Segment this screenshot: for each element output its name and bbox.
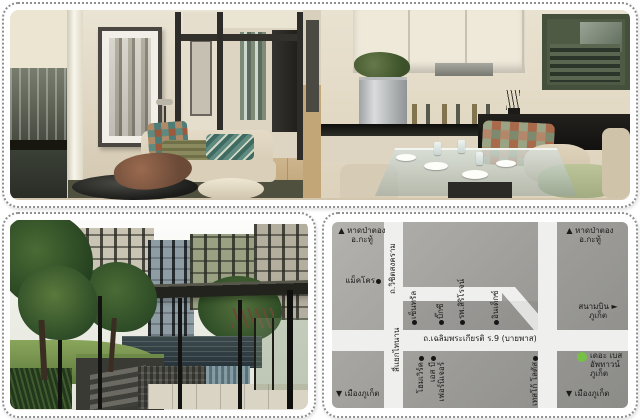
bedroom-ceiling — [223, 12, 297, 28]
counter-edge — [10, 140, 67, 150]
pavilion-column — [178, 298, 182, 409]
poi-label-sb-furniture: เอส บี เฟอร์นิเจอร์ — [428, 362, 446, 406]
location-map-card: ▲ หาดป่าตอง อ.กะทู้ ▲ หาดป่าตอง อ.กะทู้ … — [322, 212, 638, 418]
poi-label-bigc: บิ๊กซี — [436, 304, 446, 319]
poi-label-line: เอส บี — [428, 362, 437, 406]
direction-line: สนามบิน ► — [570, 302, 626, 311]
project-label-the-base-uptown: เดอะ เบส อัพทาวน์ ภูเก็ต — [590, 351, 622, 378]
exterior-photo-card — [2, 212, 316, 418]
reed-diffuser — [506, 90, 520, 110]
direction-airport: สนามบิน ► ภูเก็ต — [570, 302, 626, 320]
direction-line: ▲ หาดป่าตอง — [334, 226, 390, 235]
pavilion-column — [238, 300, 242, 409]
dish — [496, 160, 516, 167]
poi-marker-bigc — [439, 320, 444, 325]
real-estate-collage: ▲ หาดป่าตอง อ.กะทู้ ▲ หาดป่าตอง อ.กะทู้ … — [0, 0, 640, 420]
dish — [462, 170, 488, 179]
mirror-panel — [10, 68, 67, 142]
road-label-bypass: ถ.เฉลิมพระเกียรติ ร.9 (บายพาส) — [390, 334, 570, 343]
dish — [424, 162, 448, 170]
direction-patong-left: ▲ หาดป่าตอง อ.กะทู้ — [334, 226, 390, 244]
project-marker-the-base-uptown — [577, 352, 587, 362]
zigzag-pillow — [206, 134, 254, 160]
floor-lamp-head — [156, 99, 173, 105]
pavilion-column — [287, 290, 293, 409]
poi-label-index: อินเด็กซ์ — [491, 291, 501, 319]
drinking-glass — [434, 142, 441, 155]
exterior-photo — [10, 220, 308, 410]
poi-label-siriroj-hospital: รพ.สิริโรจน์ — [457, 279, 467, 319]
poi-label-line: เฟอร์นิเจอร์ — [437, 362, 446, 406]
direction-line: อ.กะทู้ — [562, 235, 618, 244]
poi-marker-sb-furniture — [431, 356, 436, 361]
dish — [396, 154, 416, 161]
project-name-line: อัพทาวน์ — [590, 360, 622, 369]
interior-photo — [10, 10, 630, 200]
drinking-glass — [476, 152, 483, 165]
curtain-strip — [67, 10, 83, 198]
poi-label-tesco-lotus: เทสโก้ โลตัส — [530, 362, 539, 406]
hallway-mirror — [306, 20, 319, 112]
city-block — [403, 301, 538, 330]
poi-marker-siriroj-hospital — [460, 320, 465, 325]
ottoman — [198, 178, 264, 200]
slatted-wall-decor — [542, 14, 630, 90]
slatted-divider — [240, 32, 266, 120]
direction-phuket-town-right: ▼ เมืองภูเก็ต — [566, 389, 609, 398]
poi-marker-homework — [419, 356, 424, 361]
dining-table-base — [448, 182, 512, 198]
road-label-wichit-songkram: ถ.วิชิตสงคราม — [388, 243, 398, 294]
glass-railing — [254, 318, 308, 390]
direction-phuket-town-left: ▼ เมืองภูเก็ต — [336, 389, 379, 398]
project-name-line: เดอะ เบส — [590, 351, 622, 360]
poi-marker-makro — [376, 279, 381, 284]
direction-line: ▲ หาดป่าตอง — [562, 226, 618, 235]
drinking-glass — [458, 140, 465, 153]
pavilion-column — [98, 296, 102, 409]
cabinet-base — [10, 150, 67, 198]
location-map: ▲ หาดป่าตอง อ.กะทู้ ▲ หาดป่าตอง อ.กะทู้ … — [332, 222, 628, 408]
partition-beam — [175, 34, 308, 41]
direction-patong-right: ▲ หาดป่าตอง อ.กะทู้ — [562, 226, 618, 244]
poi-marker-index — [494, 320, 499, 325]
poi-marker-tesco-lotus — [533, 356, 538, 361]
range-hood — [435, 63, 493, 76]
poi-label-homework: โฮมเวิร์ค — [416, 362, 425, 406]
plant — [354, 52, 410, 79]
direction-line: ภูเก็ต — [570, 311, 626, 320]
kitchen-cabinet — [10, 10, 67, 71]
direction-line: อ.กะทู้ — [334, 235, 390, 244]
poi-label-makro: แม็คโคร — [332, 276, 375, 285]
beige-pillow — [602, 128, 630, 198]
poi-marker-central — [412, 320, 417, 325]
poi-label-central: เซ็นทรัล — [409, 291, 419, 319]
tree — [18, 265, 98, 340]
project-name-line: ภูเก็ต — [590, 369, 622, 378]
interior-photo-card — [2, 2, 638, 208]
wardrobe — [272, 30, 298, 132]
